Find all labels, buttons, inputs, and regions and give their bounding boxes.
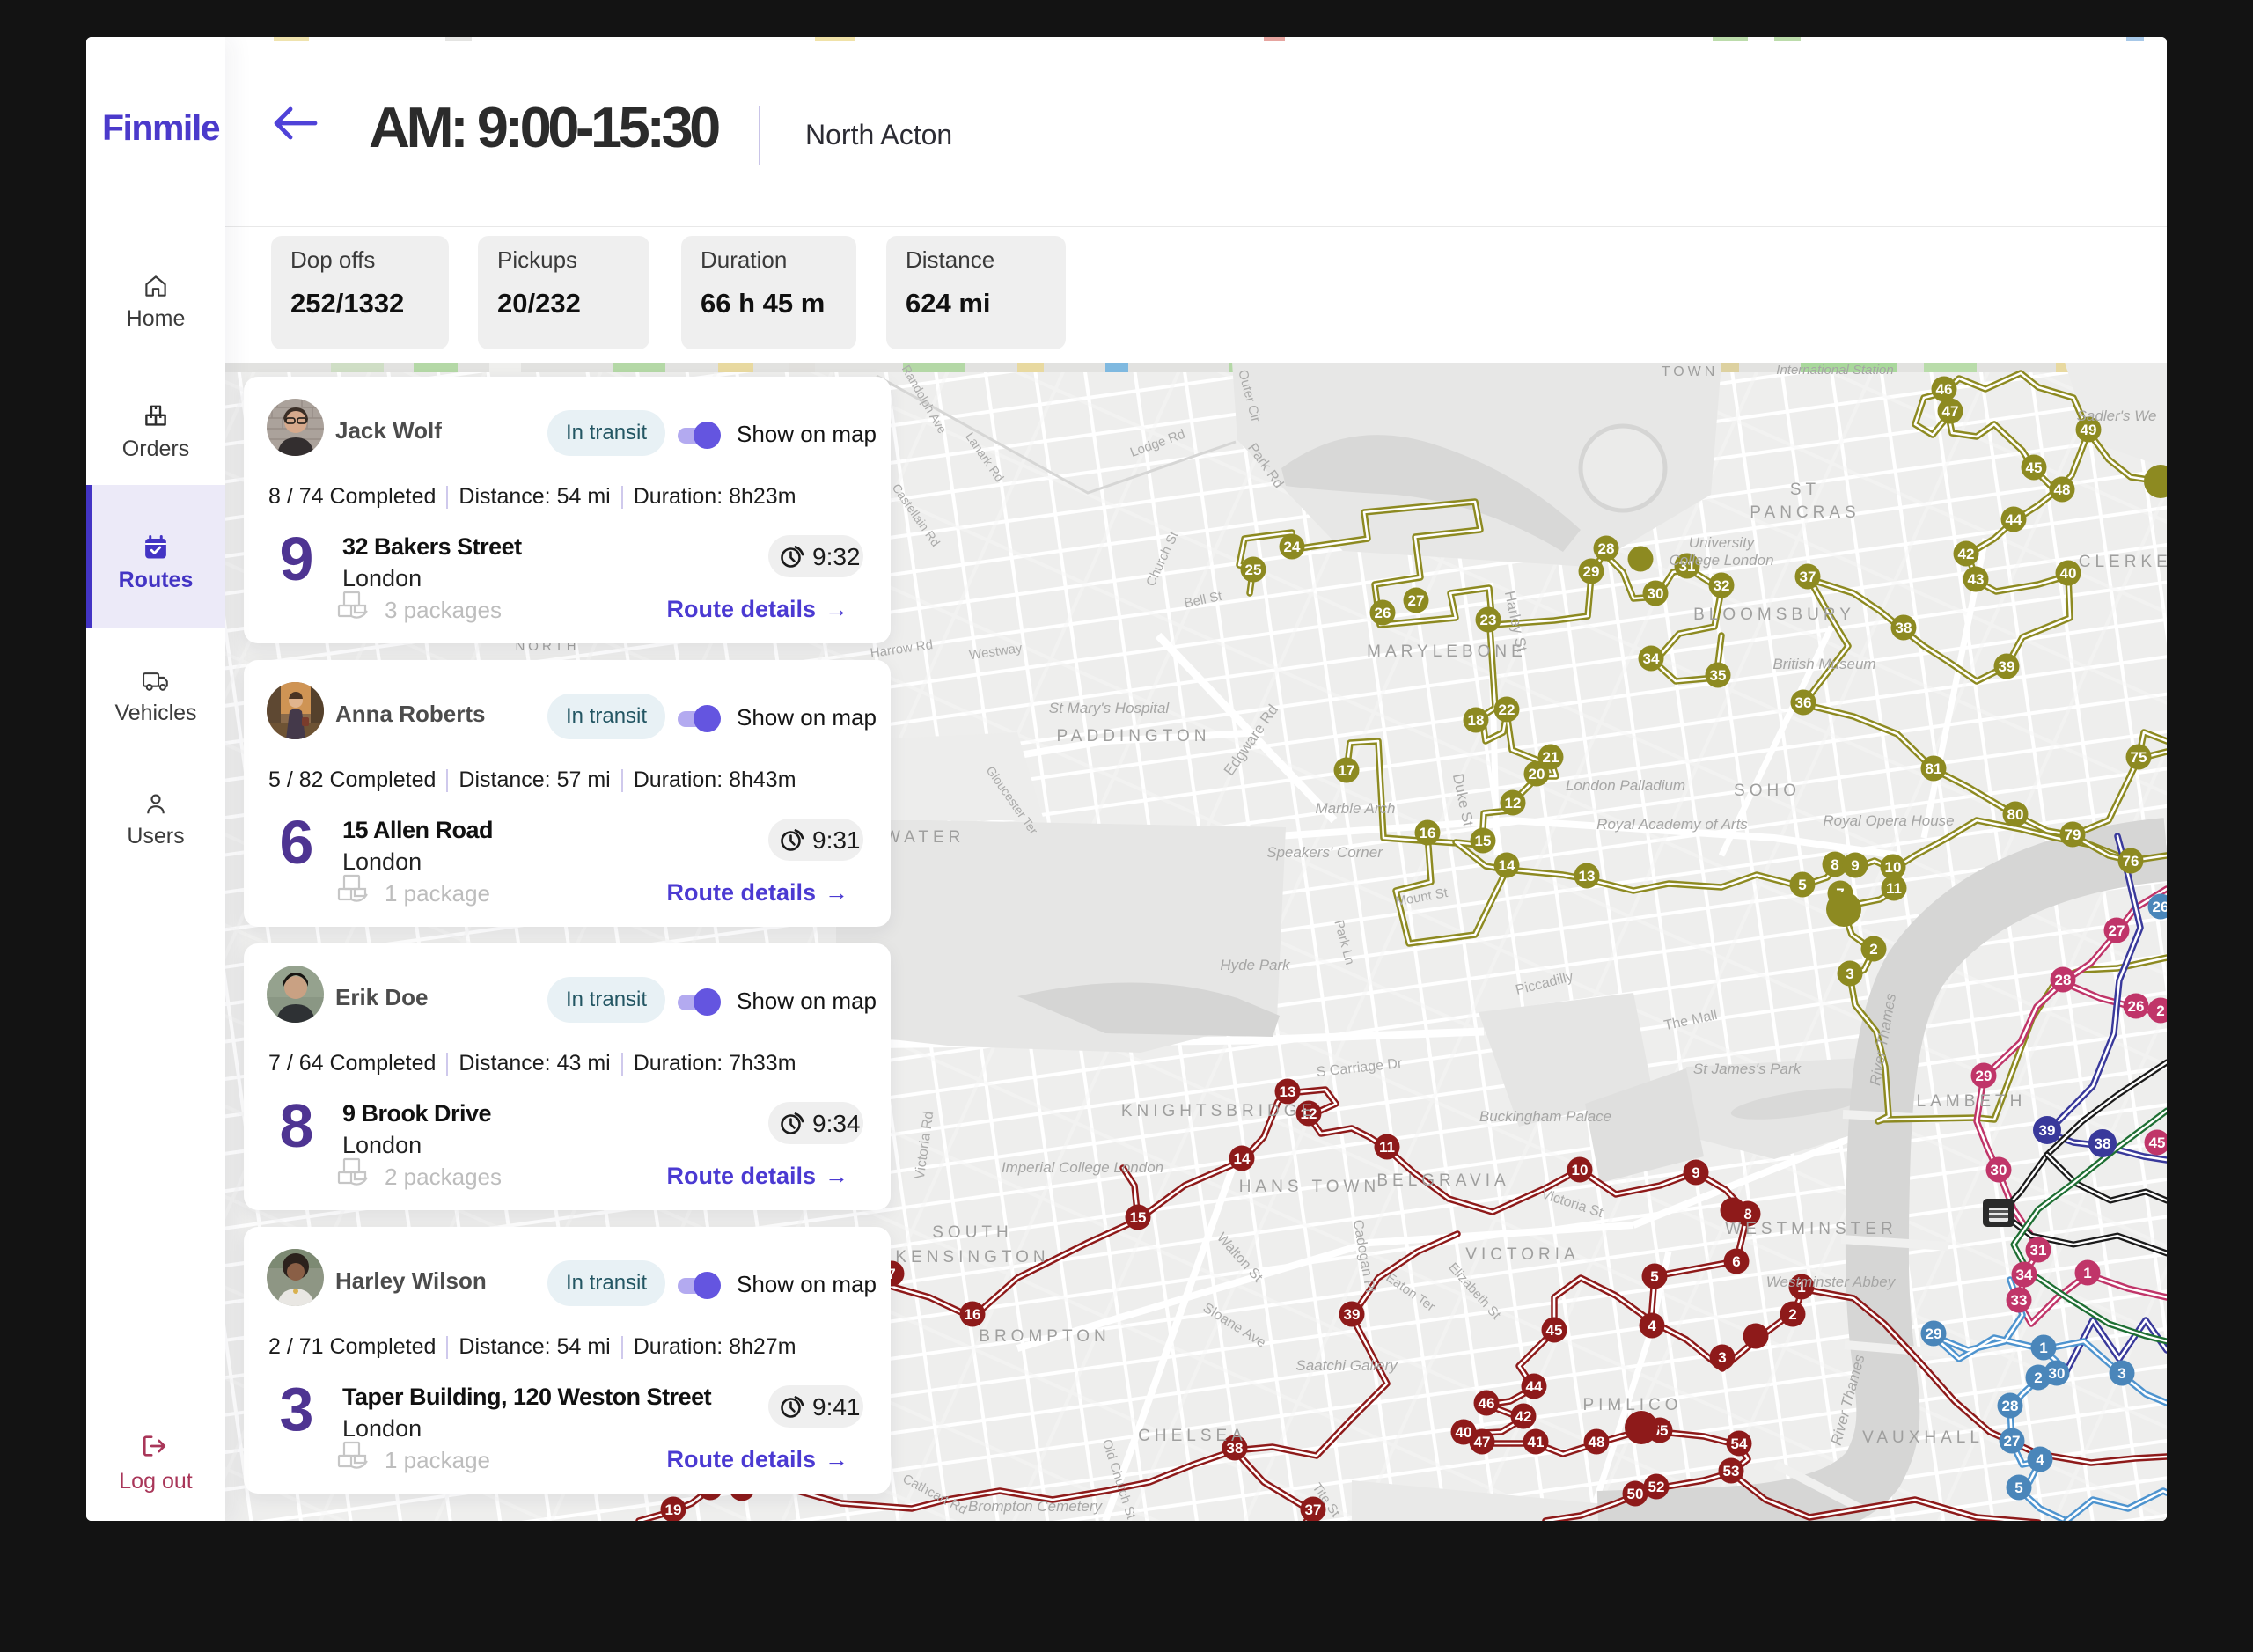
svg-text:PIMLICO: PIMLICO (1582, 1396, 1682, 1414)
svg-text:40: 40 (1456, 1424, 1472, 1441)
svg-text:34: 34 (1643, 650, 1660, 667)
svg-text:26: 26 (1375, 605, 1391, 621)
svg-text:14: 14 (1234, 1150, 1251, 1167)
svg-text:13: 13 (1280, 1083, 1296, 1100)
svg-text:23: 23 (1480, 612, 1497, 628)
svg-text:29: 29 (1926, 1325, 1942, 1342)
svg-text:20: 20 (1529, 766, 1545, 782)
svg-text:St James's Park: St James's Park (1693, 1061, 1802, 1077)
svg-text:International Station: International Station (1776, 363, 1893, 378)
svg-text:11: 11 (1379, 1139, 1395, 1156)
svg-text:43: 43 (1968, 571, 1985, 588)
svg-text:16: 16 (1420, 825, 1436, 841)
svg-text:75: 75 (2131, 749, 2147, 766)
svg-text:45: 45 (1546, 1322, 1563, 1339)
svg-text:14: 14 (1499, 857, 1515, 874)
svg-text:40: 40 (2060, 565, 2077, 582)
svg-text:52: 52 (1648, 1479, 1665, 1495)
svg-text:BLOOMSBURY: BLOOMSBURY (1693, 606, 1855, 624)
svg-text:27: 27 (2004, 1433, 2021, 1450)
svg-text:Speakers' Corner: Speakers' Corner (1266, 844, 1383, 861)
svg-text:42: 42 (1515, 1408, 1532, 1425)
svg-text:46: 46 (1936, 381, 1953, 398)
svg-text:39: 39 (1999, 658, 2015, 675)
svg-text:48: 48 (2054, 481, 2071, 498)
svg-text:VICTORIA: VICTORIA (1465, 1245, 1579, 1264)
svg-text:9: 9 (1692, 1164, 1699, 1181)
svg-text:TOWN: TOWN (1662, 364, 1719, 379)
svg-text:53: 53 (1723, 1463, 1740, 1479)
svg-text:London Palladium: London Palladium (1566, 777, 1685, 794)
svg-text:WESTMINSTER: WESTMINSTER (1725, 1220, 1897, 1238)
svg-text:British Museum: British Museum (1772, 656, 1875, 672)
svg-text:81: 81 (1926, 760, 1942, 777)
svg-text:Marble Arch: Marble Arch (1315, 800, 1395, 817)
svg-text:LAMBETH: LAMBETH (1917, 1092, 2027, 1111)
svg-text:37: 37 (1305, 1501, 1322, 1518)
svg-text:39: 39 (1344, 1306, 1361, 1323)
svg-text:1: 1 (2083, 1265, 2091, 1281)
svg-text:45: 45 (2149, 1134, 2166, 1151)
svg-text:4: 4 (2036, 1451, 2044, 1468)
svg-text:26: 26 (2128, 998, 2145, 1015)
svg-text:Brompton Cemetery: Brompton Cemetery (968, 1498, 1104, 1515)
svg-text:44: 44 (2006, 511, 2022, 528)
svg-text:28: 28 (1598, 540, 1615, 557)
svg-text:11: 11 (1886, 880, 1902, 897)
svg-text:2: 2 (2034, 1369, 2042, 1386)
svg-text:38: 38 (2095, 1135, 2111, 1152)
svg-text:15: 15 (1130, 1209, 1147, 1226)
svg-text:SOHO: SOHO (1734, 782, 1801, 800)
svg-text:2: 2 (1869, 941, 1877, 958)
svg-text:17: 17 (1339, 762, 1355, 779)
svg-text:36: 36 (1795, 694, 1812, 711)
svg-text:BELGRAVIA: BELGRAVIA (1376, 1171, 1509, 1190)
svg-text:35: 35 (1710, 667, 1727, 684)
svg-text:47: 47 (1942, 403, 1959, 420)
svg-text:ST: ST (1790, 481, 1820, 499)
svg-text:76: 76 (2123, 853, 2139, 870)
svg-text:1: 1 (2039, 1340, 2047, 1356)
svg-text:3: 3 (1846, 966, 1853, 982)
svg-text:41: 41 (1528, 1434, 1545, 1450)
svg-text:15: 15 (1475, 833, 1492, 849)
svg-text:KNIGHTSBRIDGE: KNIGHTSBRIDGE (1121, 1102, 1317, 1120)
svg-text:3: 3 (1718, 1349, 1726, 1366)
svg-text:4: 4 (1648, 1318, 1656, 1334)
svg-text:5: 5 (1650, 1268, 1658, 1285)
svg-text:24: 24 (1284, 539, 1301, 555)
svg-text:CHELSEA: CHELSEA (1138, 1427, 1247, 1445)
svg-text:80: 80 (2007, 806, 2024, 823)
svg-text:College London: College London (1669, 552, 1773, 569)
svg-text:Royal Opera House: Royal Opera House (1823, 812, 1954, 829)
svg-text:54: 54 (1731, 1435, 1748, 1452)
svg-text:31: 31 (2030, 1242, 2047, 1259)
svg-text:42: 42 (1958, 546, 1975, 562)
svg-text:44: 44 (1526, 1378, 1543, 1395)
svg-text:St Mary's Hospital: St Mary's Hospital (1049, 700, 1171, 716)
svg-text:Royal Academy of Arts: Royal Academy of Arts (1596, 816, 1748, 833)
svg-text:10: 10 (1572, 1162, 1589, 1178)
svg-text:5: 5 (2014, 1479, 2022, 1496)
svg-text:37: 37 (1800, 569, 1816, 585)
svg-text:26: 26 (2153, 899, 2167, 915)
svg-text:34: 34 (2016, 1267, 2033, 1283)
svg-text:3: 3 (2117, 1365, 2125, 1382)
svg-text:47: 47 (1474, 1434, 1491, 1450)
svg-text:13: 13 (1579, 868, 1596, 885)
svg-text:21: 21 (1543, 749, 1559, 766)
svg-text:38: 38 (1896, 620, 1912, 636)
svg-text:29: 29 (1583, 563, 1600, 580)
svg-text:Imperial College London: Imperial College London (1002, 1159, 1163, 1176)
svg-text:MARYLEBONE: MARYLEBONE (1367, 642, 1527, 661)
svg-text:28: 28 (2002, 1398, 2019, 1414)
svg-text:48: 48 (1589, 1434, 1605, 1450)
svg-text:Sadler's We: Sadler's We (2077, 407, 2157, 424)
svg-text:30: 30 (1991, 1162, 2007, 1178)
svg-text:39: 39 (2039, 1122, 2056, 1139)
svg-text:6: 6 (1732, 1253, 1740, 1270)
svg-text:5: 5 (1798, 877, 1806, 893)
svg-text:9: 9 (1851, 857, 1859, 874)
svg-text:46: 46 (1479, 1395, 1495, 1412)
svg-text:Hyde Park: Hyde Park (1220, 957, 1291, 973)
svg-text:25: 25 (1245, 562, 1262, 578)
svg-text:19: 19 (665, 1501, 682, 1518)
svg-text:University: University (1689, 534, 1756, 551)
svg-text:HANS TOWN: HANS TOWN (1239, 1178, 1380, 1196)
svg-text:CLERKENWELL: CLERKENWELL (2079, 553, 2167, 571)
svg-text:32: 32 (1714, 577, 1730, 594)
svg-text:Buckingham Palace: Buckingham Palace (1479, 1108, 1611, 1125)
svg-text:18: 18 (1468, 712, 1485, 729)
svg-text:50: 50 (1627, 1486, 1644, 1502)
svg-text:BROMPTON: BROMPTON (979, 1327, 1110, 1346)
svg-text:30: 30 (2049, 1365, 2066, 1382)
svg-text:Saatchi Gallery: Saatchi Gallery (1295, 1357, 1398, 1374)
svg-text:16: 16 (965, 1306, 981, 1323)
svg-text:27: 27 (2109, 922, 2125, 939)
svg-text:SOUTH: SOUTH (932, 1223, 1013, 1242)
svg-text:12: 12 (1505, 795, 1522, 811)
svg-text:27: 27 (1408, 592, 1425, 609)
svg-text:2: 2 (1788, 1306, 1796, 1323)
svg-text:79: 79 (2065, 826, 2081, 843)
svg-text:PANCRAS: PANCRAS (1750, 503, 1860, 522)
svg-text:8: 8 (1831, 856, 1838, 873)
svg-text:28: 28 (2055, 972, 2072, 988)
svg-text:33: 33 (2011, 1292, 2028, 1309)
svg-text:2: 2 (2156, 1002, 2164, 1019)
svg-text:45: 45 (2026, 459, 2043, 476)
svg-text:10: 10 (1885, 859, 1902, 876)
svg-text:PADDINGTON: PADDINGTON (1057, 727, 1211, 745)
svg-text:22: 22 (1499, 701, 1515, 718)
svg-text:Westminster Abbey: Westminster Abbey (1766, 1274, 1897, 1290)
svg-text:KENSINGTON: KENSINGTON (895, 1248, 1049, 1267)
svg-text:29: 29 (1976, 1068, 1992, 1084)
svg-text:VAUXHALL: VAUXHALL (1862, 1428, 1984, 1447)
svg-text:30: 30 (1648, 585, 1664, 602)
